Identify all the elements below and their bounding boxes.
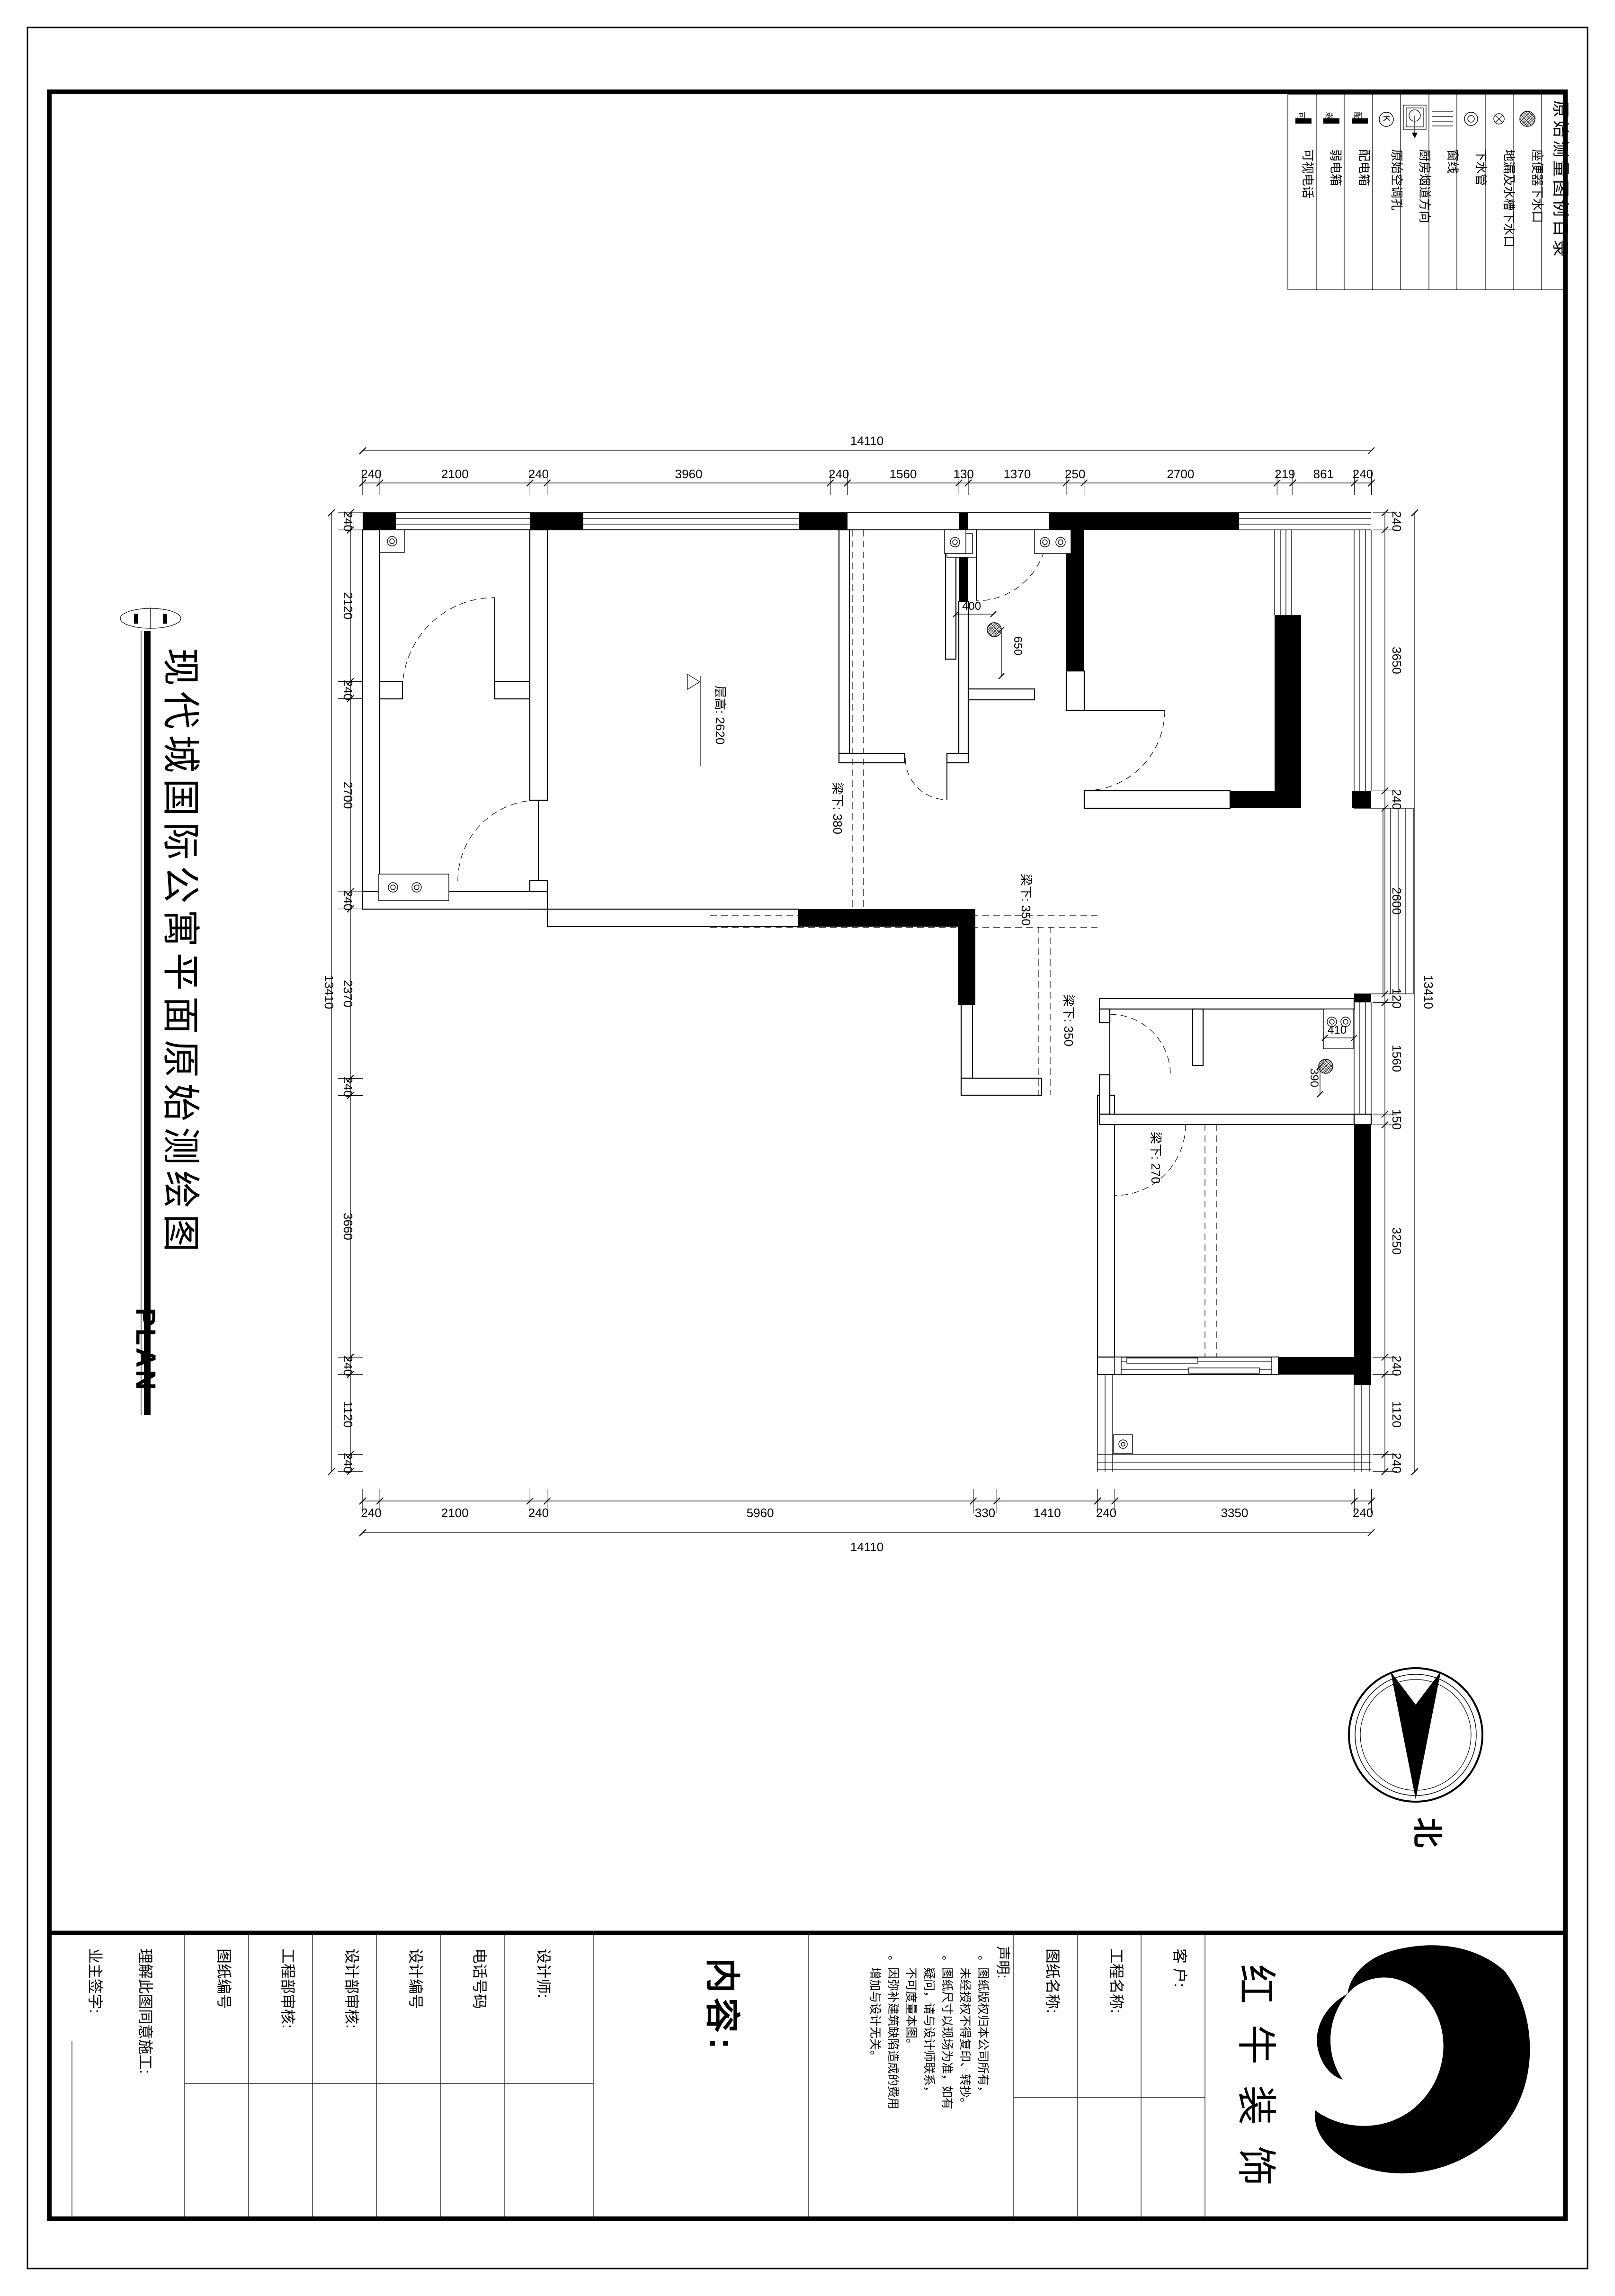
- svg-text:650: 650: [1011, 636, 1024, 655]
- dim-label: 240: [341, 890, 355, 911]
- statement-line: 疑问，请与设计师联系，: [922, 1967, 936, 2098]
- company-logo-accent: [1317, 1994, 1347, 2080]
- dim-label: 240: [1353, 467, 1373, 481]
- dim-label: 2600: [1390, 887, 1404, 915]
- statement-line: 。图纸尺寸以现场为准，如有: [940, 1956, 954, 2109]
- toilet-drain-icon: [1520, 111, 1535, 126]
- agree-label: 理解此图同意施工:: [137, 1948, 154, 2074]
- videophone-icon: 可: [1295, 112, 1312, 124]
- dim-label: 240: [1390, 1356, 1404, 1376]
- floor-plan: [363, 513, 1371, 1385]
- balcony-floor-drain: [1114, 1435, 1133, 1454]
- dim-label: 240: [528, 467, 549, 481]
- legend-label: 厨房烟道方向: [1418, 149, 1432, 223]
- dim-label: 240: [341, 1453, 355, 1473]
- field-designer: 设计师:: [535, 1948, 552, 1998]
- dim-label: 120: [1390, 988, 1404, 1009]
- owner-sign-label: 业主签字:: [87, 1948, 104, 2013]
- dim-label: 240: [341, 680, 355, 700]
- dim-total-left: 13410: [322, 975, 336, 1009]
- north-arrow: 北: [1349, 1668, 1482, 1848]
- dim-label: 5960: [747, 1506, 774, 1520]
- legend-label: 配电箱: [1357, 149, 1371, 186]
- dim-label: 2700: [1167, 467, 1195, 481]
- north-label: 北: [1410, 1817, 1444, 1848]
- dim-chain-bottom: 2402100240596033014102403350240: [359, 1489, 1375, 1520]
- dim-label: 240: [1353, 1506, 1373, 1520]
- dim-label: 150: [1390, 1109, 1404, 1130]
- statement-line: 。因弥补建筑缺陷造成的费用: [886, 1956, 900, 2109]
- windows: [396, 518, 1413, 1472]
- dim-label: 130: [953, 467, 973, 481]
- bathroom1-drains: [945, 530, 1071, 554]
- legend-label: 窗线: [1445, 149, 1460, 174]
- dim-label: 1560: [1390, 1045, 1404, 1072]
- svg-text:400: 400: [962, 600, 981, 613]
- floor-height-label: 层高: 2620: [687, 674, 727, 766]
- dim-label: 861: [1313, 467, 1334, 481]
- svg-text:410: 410: [1328, 1024, 1347, 1036]
- field-design-review: 设计部审核:: [343, 1948, 360, 2028]
- statement-line: 。图纸版权归本公司所有，: [976, 1956, 990, 2098]
- dim-label: 2120: [341, 592, 355, 619]
- dim-label: 2370: [341, 980, 355, 1008]
- dim-label: 3250: [1390, 1227, 1404, 1255]
- dim-label: 240: [1390, 511, 1404, 531]
- dim-label: 1120: [341, 1401, 355, 1428]
- drawing-title-block: 现代城国际公寓平面原始测绘图 PLAN: [120, 608, 202, 1415]
- legend-label: 地漏及水槽下水口: [1502, 149, 1516, 248]
- dim-label: 1120: [1390, 1401, 1404, 1428]
- dim-label: 2100: [441, 467, 469, 481]
- dim-label: 240: [1390, 789, 1404, 810]
- statement-line: 未经授权不得复印、转抄。: [958, 1967, 972, 2109]
- company-char: 牛: [1234, 2025, 1278, 2064]
- dim-label: 3650: [1390, 647, 1404, 674]
- dim-total-top: 14110: [850, 434, 883, 448]
- company-char: 红: [1234, 1964, 1278, 2004]
- company-char: 饰: [1234, 2146, 1278, 2186]
- company-char: 装: [1234, 2085, 1278, 2125]
- dim-chain-top: 2402100240396024015601301370250270021986…: [359, 467, 1375, 495]
- dim-label: 3350: [1221, 1506, 1249, 1520]
- legend-label: 可视电话: [1301, 149, 1315, 198]
- kitchen-sink-drain: [380, 530, 404, 553]
- beam-label-270: 梁下: 270: [1149, 1132, 1163, 1184]
- legend-title: 原始测量图例目录: [1551, 100, 1570, 259]
- company-logo-mark: [1315, 1945, 1530, 2173]
- ac-hole-icon: K: [1379, 112, 1393, 126]
- field-client: 客 户:: [1171, 1948, 1188, 1987]
- beam-label-350b: 梁下: 350: [1062, 994, 1076, 1046]
- dim-total-right: 13410: [1421, 975, 1436, 1009]
- dim-label: 240: [528, 1506, 549, 1520]
- dim-label: 240: [361, 467, 381, 481]
- content-label: 内容:: [703, 1958, 742, 2054]
- dim-label: 3960: [675, 467, 703, 481]
- floor-drain-icon: [1494, 114, 1504, 124]
- dim-label: 250: [1065, 467, 1085, 481]
- dim-label: 2100: [441, 1506, 469, 1520]
- dim-label: 219: [1275, 467, 1295, 481]
- dim-label: 240: [1390, 1453, 1404, 1473]
- field-drawing-no: 图纸编号: [215, 1948, 232, 2009]
- dim-label: 1560: [890, 467, 917, 481]
- field-phone: 电话号码: [471, 1948, 488, 2009]
- weak-current-box-icon: 弱: [1323, 112, 1339, 124]
- dim-label: 1370: [1003, 467, 1031, 481]
- title-block: 业主签字: 理解此图同意施工: 图纸编号 工程部审核: 设计部审核: 设计编号 …: [72, 1935, 1530, 2217]
- page-title: 现代城国际公寓平面原始测绘图: [160, 648, 202, 1258]
- field-eng-review: 工程部审核:: [279, 1948, 296, 2028]
- legend-label: 弱电箱: [1329, 149, 1343, 186]
- legend-label: 原始空调孔: [1390, 149, 1404, 211]
- dim-label: 240: [341, 511, 355, 531]
- dim-label: 240: [829, 467, 849, 481]
- beam-label-380: 梁下: 380: [830, 782, 845, 834]
- dim-label: 240: [1096, 1506, 1116, 1520]
- drawing-sheet: 原始测量图例目录 可 可视电话 弱 弱电箱 配 配电箱 K 原始空调孔 厨房: [0, 0, 1615, 2296]
- dim-chain-right: 24036502402600120156015032502401120240: [1373, 509, 1404, 1475]
- power-box-icon: 配: [1352, 112, 1368, 124]
- legend-table: 原始测量图例目录 可 可视电话 弱 弱电箱 配 配电箱 K 原始空调孔 厨房: [1288, 94, 1570, 290]
- field-project-name: 工程名称:: [1108, 1948, 1125, 2013]
- company-logo: 红 牛 装 饰: [1234, 1945, 1530, 2186]
- dim-label: 2700: [341, 782, 355, 809]
- dim-total-bottom: 14110: [850, 1540, 883, 1554]
- fixtures: [378, 530, 1353, 1454]
- dim-label: 3660: [341, 1213, 355, 1240]
- svg-text:390: 390: [1308, 1068, 1321, 1087]
- toilet-drain-1: [987, 623, 1001, 637]
- field-drawing-name: 图纸名称:: [1044, 1948, 1061, 2013]
- statement-line: 不可度量本图。: [904, 1967, 918, 2050]
- legend-label: 座便器下水口: [1530, 149, 1544, 223]
- dim-label: 240: [341, 1077, 355, 1097]
- svg-text:K: K: [1381, 116, 1391, 122]
- dim-label: 240: [341, 1356, 355, 1376]
- page-title-en: PLAN: [130, 1308, 161, 1392]
- dim-label: 330: [975, 1506, 995, 1520]
- statement-line: 增加与设计无关。: [868, 1967, 882, 2062]
- sheet-border: [27, 27, 1588, 2269]
- statement-heading: 声明:: [995, 1946, 1010, 1978]
- drain-pipe-icon: [1464, 112, 1478, 125]
- svg-text:层高: 2620: 层高: 2620: [713, 686, 727, 744]
- entry-sink: [378, 874, 449, 901]
- dim-totals: 14110 14110 13410 13410: [322, 434, 1436, 1554]
- legend-label: 下水管: [1474, 149, 1488, 186]
- dim-chain-left: 24021202402700240237024036602401120240: [338, 509, 363, 1475]
- dim-label: 240: [361, 1506, 381, 1520]
- window-line-icon: [1432, 112, 1453, 126]
- kitchen-flue-icon: [1403, 105, 1426, 138]
- dim-label: 1410: [1034, 1506, 1061, 1520]
- field-design-no: 设计编号: [407, 1948, 424, 2009]
- beam-label-350a: 梁下: 350: [1019, 874, 1033, 926]
